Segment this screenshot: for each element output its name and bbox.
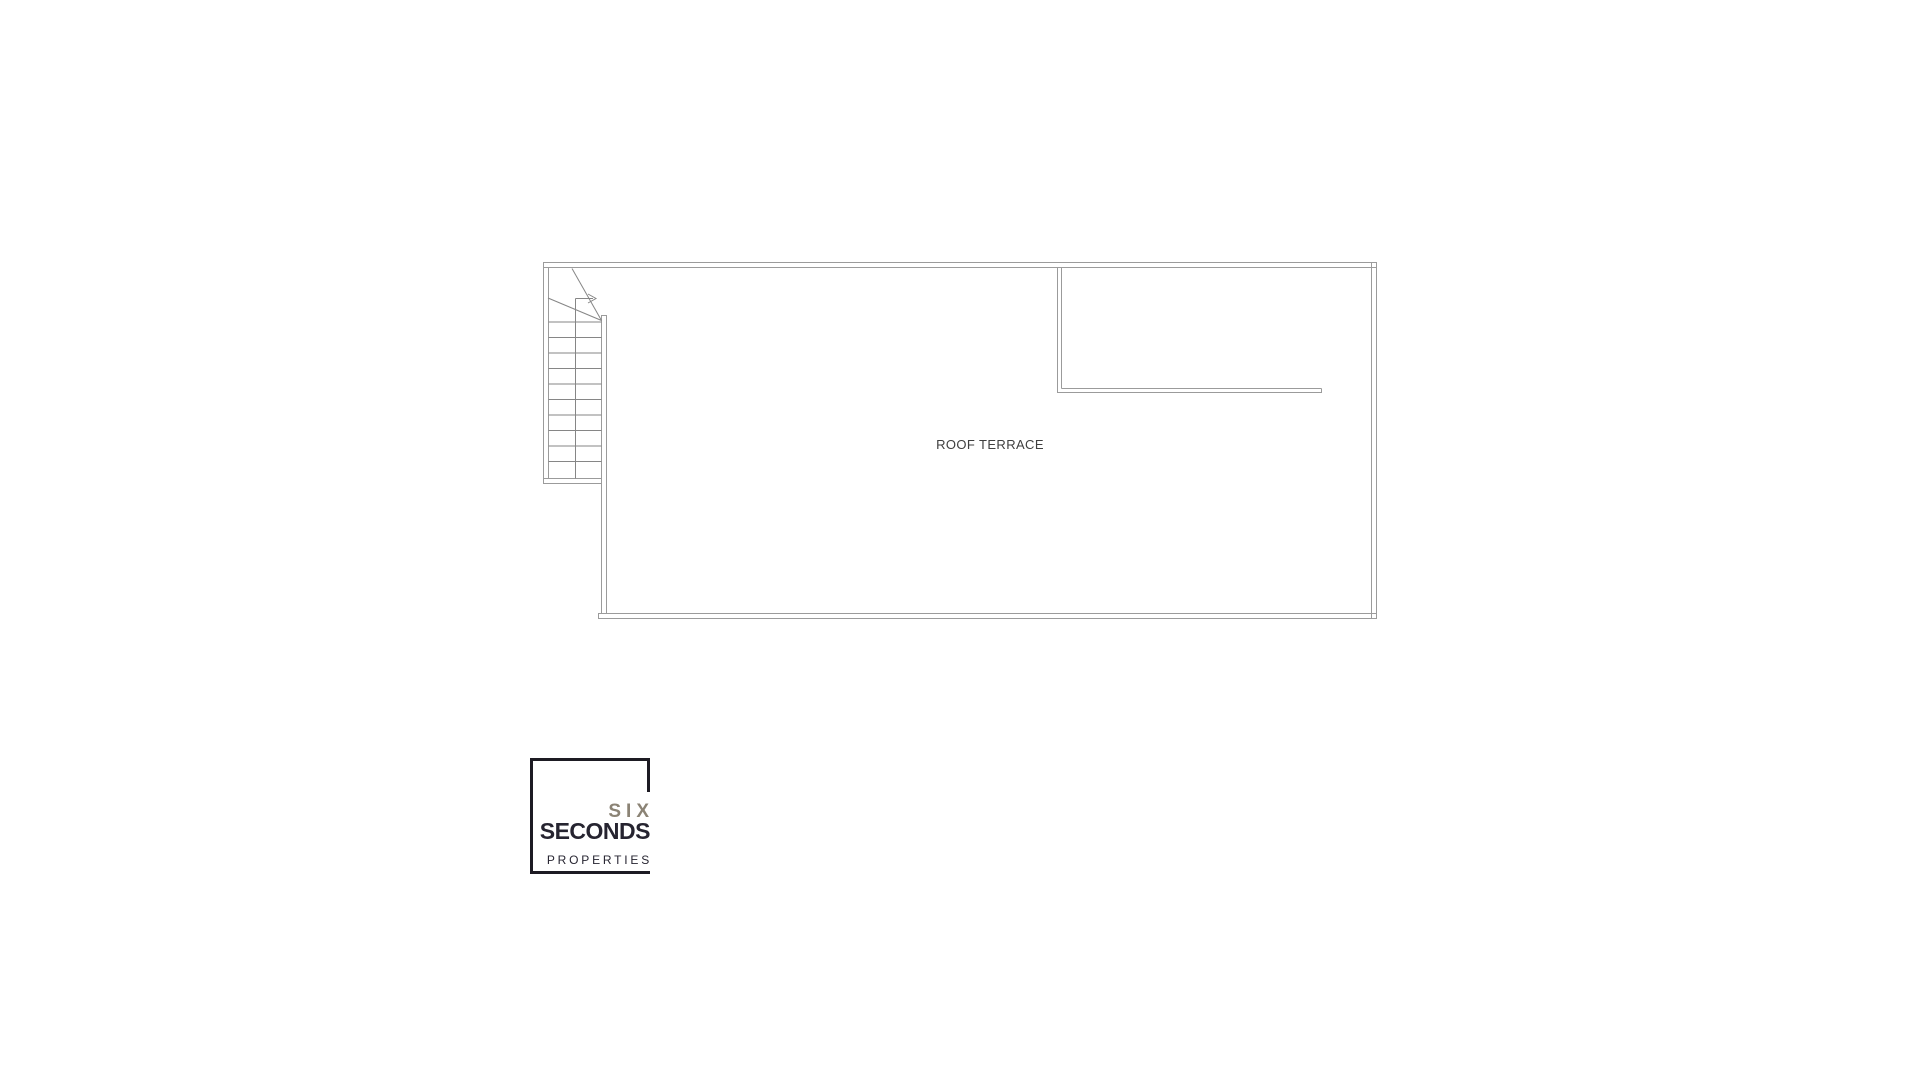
wall-right xyxy=(1372,262,1377,619)
stair-diagonal-line xyxy=(548,298,602,321)
six-seconds-logo: SIX SECONDS PROPERTIES xyxy=(530,758,650,874)
wall-top xyxy=(543,263,1377,268)
wall-left-main xyxy=(601,316,607,615)
floorplan-page: ROOF TERRACE SIX SECONDS PROPERTIES xyxy=(0,0,1920,1080)
room-label: ROOF TERRACE xyxy=(890,437,1090,452)
wall-upper-roof-vertical xyxy=(1058,267,1062,393)
logo-word-seconds: SECONDS xyxy=(539,820,651,843)
wall-stairwell-bottom xyxy=(543,479,602,484)
logo-frame-bottom xyxy=(530,871,650,874)
wall-upper-roof-horizontal xyxy=(1058,389,1322,394)
staircase xyxy=(548,269,602,479)
logo-frame-top xyxy=(530,758,650,761)
wall-bottom xyxy=(598,613,1377,619)
wall-stairwell-left xyxy=(544,262,549,484)
stair-direction-arrow xyxy=(576,294,597,303)
stair-break-lines xyxy=(548,269,602,321)
logo-frame-right xyxy=(647,758,650,792)
logo-word-properties: PROPERTIES xyxy=(546,854,653,866)
logo-frame-left xyxy=(530,758,533,874)
stair-diagonal-line xyxy=(572,269,602,321)
